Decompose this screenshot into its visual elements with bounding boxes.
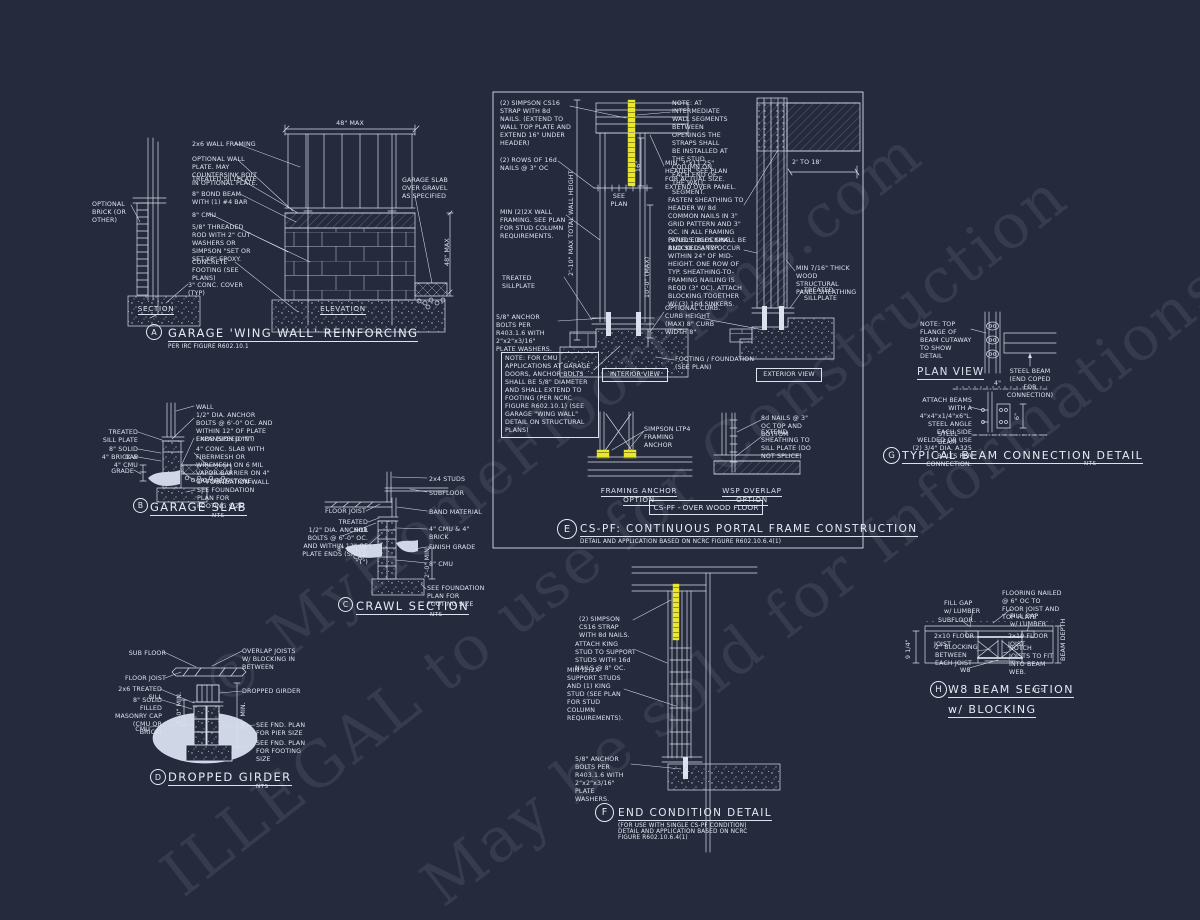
detail-e-caption: CS-PF: CONTINUOUS PORTAL FRAME CONSTRUCT… bbox=[580, 517, 918, 545]
callout-cmu-8-c: 8" CMU bbox=[429, 561, 461, 569]
callout-dropped-girder: DROPPED GIRDER bbox=[242, 688, 308, 696]
callout-garage-slab-gravel: GARAGE SLAB OVER GRAVEL AS SPECIFIED bbox=[402, 177, 450, 201]
detail-f-caption: END CONDITION DETAIL (FOR USE WITH SINGL… bbox=[618, 801, 772, 841]
callout-grade: GRADE bbox=[108, 468, 134, 476]
note-cmu-applications: NO​TE: FOR CMU APPLICATIONS AT GARAGE DO… bbox=[501, 352, 599, 438]
callout-floor-joist-c: FLOOR JOIST bbox=[324, 508, 366, 516]
plan-view-label: PLAN VIEW bbox=[917, 366, 984, 379]
detail-c-nts: NTS bbox=[430, 612, 442, 618]
callout-subfloor-h: SUBFLOOR bbox=[938, 617, 978, 625]
detail-g-nts: NTS bbox=[1084, 461, 1096, 467]
detail-g-caption: TYPICAL BEAM CONNECTION DETAIL bbox=[902, 444, 1143, 464]
dim-beam-depth-h: BEAM DEPTH bbox=[1060, 619, 1068, 661]
callout-extend-sheathing: EXTEND SHEATHING TO SILL PLATE (DO NOT S… bbox=[761, 429, 817, 461]
callout-treated-sill-plate-b: TREATED SILL PLATE bbox=[102, 429, 138, 445]
callout-finish-grade: FINISH GRADE bbox=[429, 544, 483, 552]
detail-e-title: CS-PF: CONTINUOUS PORTAL FRAME CONSTRUCT… bbox=[580, 523, 918, 537]
callout-anchor-bolts-e: 5/8" ANCHOR BOLTS PER R403.1.6 WITH 2"x2… bbox=[496, 314, 556, 354]
cs-pf-floor-box: CS-PF - OVER WOOD FLOOR bbox=[649, 500, 763, 515]
callout-floor-joist-d: FLOOR JOIST bbox=[122, 675, 166, 683]
callout-foundation-wall: 8" FOUNDATION WALL bbox=[197, 479, 277, 487]
dim-16-e: 16" bbox=[635, 161, 643, 172]
note-top-flange: NOTE: TOP FLANGE OF BEAM CUTAWAY TO SHOW… bbox=[920, 321, 974, 361]
callout-ltp4-anchor: SIMPSON LTP4 FRAMING ANCHOR bbox=[644, 426, 700, 450]
detail-a-title: GARAGE 'WING WALL' REINFORCING bbox=[168, 326, 418, 342]
callout-steel-beam-coped: STEEL BEAM (END COPED FOR CONNECTION) bbox=[1004, 368, 1056, 400]
detail-g-title: TYPICAL BEAM CONNECTION DETAIL bbox=[902, 449, 1143, 464]
callout-w8: W8 bbox=[960, 667, 976, 675]
elevation-label: ELEVATION bbox=[318, 304, 368, 313]
callout-treated-sillplate-a: TREATED SILLPLATE bbox=[192, 176, 262, 184]
detail-f-bubble: F bbox=[595, 803, 614, 822]
detail-b-bubble: B bbox=[133, 498, 148, 513]
detail-h-caption: W8 BEAM SECTION w/ BLOCKING bbox=[948, 678, 1074, 718]
exterior-view-label: EXTERIOR VIEW bbox=[756, 368, 822, 382]
callout-subfloor-c: SUBFLOOR bbox=[429, 490, 475, 498]
callout-notch-joists: NOTCH JOISTS TO FIT INTO BEAM WEB. bbox=[1009, 645, 1055, 677]
callout-16d-nails: (2) ROWS OF 16d NAILS @ 3" OC bbox=[500, 157, 558, 173]
dim-height-e: 10'-0" (MAX) bbox=[644, 257, 652, 298]
detail-a-caption: GARAGE 'WING WALL' REINFORCING PER IRC F… bbox=[168, 322, 418, 350]
callout-band-material: BAND MATERIAL bbox=[429, 509, 485, 517]
detail-b-caption: GARAGE SLAB bbox=[150, 496, 247, 516]
detail-h-nts: NTS bbox=[1032, 688, 1044, 694]
callout-solid-cap-c: 8" SOLID CAP bbox=[324, 546, 366, 562]
callout-conc-cover: 3" CONC. COVER (TYP) bbox=[188, 282, 260, 298]
dim-48-max-top: 48" MAX bbox=[320, 120, 380, 128]
callout-support-studs: MIN (2)2X SUPPORT STUDS AND (1) KING STU… bbox=[567, 667, 627, 723]
callout-expansion-joint: EXPANSION JOINT bbox=[196, 436, 262, 444]
detail-g-bubble: G bbox=[883, 447, 900, 464]
callout-overlap-joists: OVERLAP JOISTS W/ BLOCKING IN BETWEEN bbox=[242, 648, 304, 672]
callout-header-e: MIN. 3"x11.25" HEADER. SEE PLAN FOR ACTU… bbox=[665, 160, 739, 192]
detail-d-title: DROPPED GIRDER bbox=[168, 770, 292, 786]
detail-h-bubble: H bbox=[930, 681, 947, 698]
detail-h-title: W8 BEAM SECTION bbox=[948, 683, 1074, 698]
dim-min-c: 2'-0" MIN. bbox=[424, 546, 432, 578]
detail-f-subtitle: (FOR USE WITH SINGLE CS-PF CONDITION) DE… bbox=[618, 823, 772, 841]
detail-c-bubble: C bbox=[338, 597, 353, 612]
detail-f-title: END CONDITION DETAIL bbox=[618, 807, 772, 821]
detail-b-title: GARAGE SLAB bbox=[150, 500, 247, 516]
detail-a-bubble: A bbox=[146, 324, 162, 340]
dim-48-max-right: 48" MAX bbox=[444, 238, 452, 266]
callout-cs16-strap-f: (2) SIMPSON CS16 STRAP WITH 8d NAILS. bbox=[579, 616, 635, 640]
detail-a-linework bbox=[128, 125, 453, 332]
callout-wall-framing-e: MIN (2)2X WALL FRAMING. SEE PLAN FOR STU… bbox=[500, 209, 568, 241]
interior-view-label: INTERIOR VIEW bbox=[602, 368, 668, 382]
callout-optional-brick: OPTIONAL BRICK (OR OTHER) bbox=[92, 201, 136, 225]
blueprint-sheet: © MyHomeFloorPlans.com ILLEGAL to use fo… bbox=[0, 0, 1200, 900]
callout-anchor-bolts-f: 5/8" ANCHOR BOLTS PER R403.1.6 WITH 2"x2… bbox=[575, 756, 631, 804]
callout-wall-framing: 2x6 WALL FRAMING bbox=[192, 141, 260, 149]
callout-treated-sillplate-e-int: TREATED SILLPLATE bbox=[502, 275, 562, 291]
detail-a-subtitle: PER IRC FIGURE R602.10.1 bbox=[168, 344, 418, 350]
detail-d-caption: DROPPED GIRDER bbox=[168, 766, 292, 786]
callout-cmu-8: 8" CMU bbox=[192, 212, 232, 220]
detail-c-title: CRAWL SECTION bbox=[356, 599, 469, 615]
dim-6-g: 6" bbox=[1014, 413, 1022, 420]
callout-bond-beam: 8" BOND BEAM WITH (1) #4 BAR bbox=[192, 191, 254, 207]
dim-beam-left-h: 9 1/4" bbox=[905, 639, 913, 659]
callout-cmu-d: CMU bbox=[128, 726, 150, 734]
dim-min-left-d: 1'-0" MIN. bbox=[176, 692, 184, 724]
callout-pier-size: SEE FND. PLAN FOR PIER SIZE bbox=[256, 722, 312, 738]
see-plan-label: SEE PLAN bbox=[604, 193, 634, 209]
dim-wall-height-e: 2'-10" MAX TOTAL WALL HEIGHT bbox=[568, 170, 576, 276]
callout-panel-edges: PANEL EDGES SHALL BE BLOCKED AND OCCUR W… bbox=[668, 237, 748, 309]
callout-footing-foundation: FOOTING / FOUNDATION (SEE PLAN) bbox=[675, 356, 759, 372]
detail-d-bubble: D bbox=[150, 769, 166, 785]
callout-wall: WALL bbox=[196, 404, 226, 412]
detail-d-nts: NTS bbox=[256, 784, 268, 790]
callout-cs16-strap-e: (2) SIMPSON CS16 STRAP WITH 8d NAILS. (E… bbox=[500, 100, 572, 148]
dim-min-right-d: 24" MIN. bbox=[240, 702, 248, 730]
dim-4-g: 4" bbox=[994, 380, 1008, 388]
callout-treated-sillplate-e-ext: TREATED SILLPLATE bbox=[804, 287, 866, 303]
dim-span-e: 2' TO 18' bbox=[792, 159, 832, 167]
callout-fill-gap-right: FILL GAP w/ LUMBER bbox=[1010, 613, 1048, 629]
callout-sub-floor-d: SUB FLOOR bbox=[126, 650, 166, 658]
callout-concrete-footing: CONCRETE FOOTING (SEE PLANS) bbox=[192, 259, 250, 283]
detail-e-bubble: E bbox=[557, 519, 577, 539]
detail-h-title2: w/ BLOCKING bbox=[948, 703, 1036, 718]
callout-cmu-brick-c: 4" CMU & 4" BRICK bbox=[429, 526, 471, 542]
callout-2x4-studs: 2x4 STUDS bbox=[429, 476, 475, 484]
detail-c-caption: CRAWL SECTION bbox=[356, 595, 469, 615]
section-label: SECTION bbox=[134, 304, 178, 313]
callout-fill-gap-left: FILL GAP w/ LUMBER bbox=[944, 600, 982, 616]
detail-b-nts: NTS bbox=[212, 513, 224, 519]
callout-blocking-h: 2" BLOCKING BETWEEN EACH JOIST bbox=[935, 644, 979, 668]
detail-e-subtitle: DETAIL AND APPLICATION BASED ON NCRC FIG… bbox=[580, 539, 918, 545]
callout-footing-size-d: SEE FND. PLAN FOR FOOTING SIZE bbox=[256, 740, 316, 764]
callout-optional-curb: OPTIONAL CURB. CURB HEIGHT (MAX) 8" CURB… bbox=[665, 305, 729, 337]
